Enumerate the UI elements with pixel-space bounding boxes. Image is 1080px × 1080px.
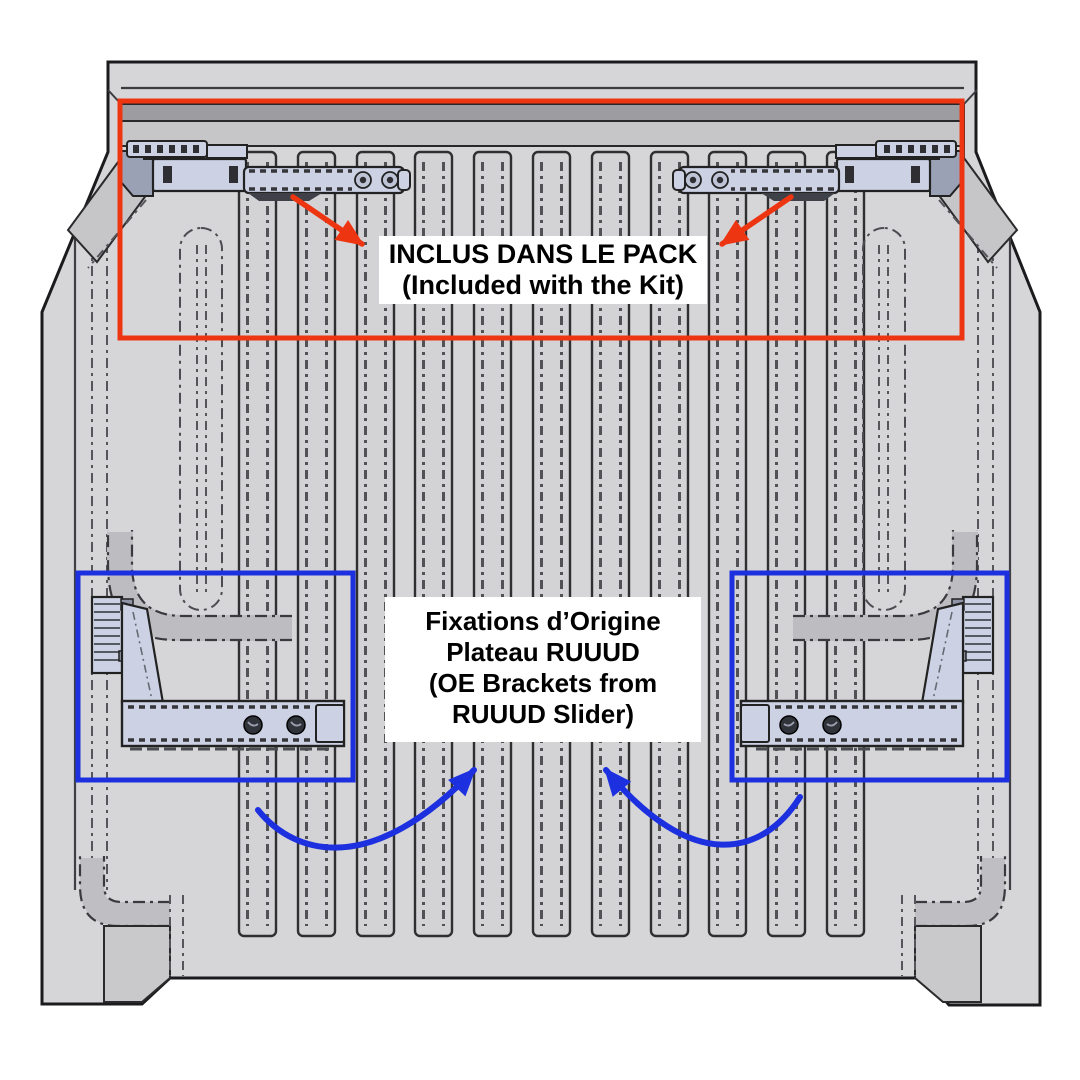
- oe-label-line-4: RUUUD Slider): [385, 699, 701, 730]
- oe-label-line-1: Fixations d’Origine: [385, 606, 701, 637]
- bed-drawing: [0, 0, 1080, 1080]
- oe-label: Fixations d’Origine Plateau RUUUD (OE Br…: [385, 597, 701, 742]
- kit-label-line-en: (Included with the Kit): [379, 270, 707, 301]
- oe-label-line-3: (OE Brackets from: [385, 668, 701, 699]
- kit-label: INCLUS DANS LE PACK (Included with the K…: [379, 236, 707, 304]
- diagram-canvas: INCLUS DANS LE PACK (Included with the K…: [0, 0, 1080, 1080]
- kit-label-line-fr: INCLUS DANS LE PACK: [379, 239, 707, 270]
- oe-label-line-2: Plateau RUUUD: [385, 637, 701, 668]
